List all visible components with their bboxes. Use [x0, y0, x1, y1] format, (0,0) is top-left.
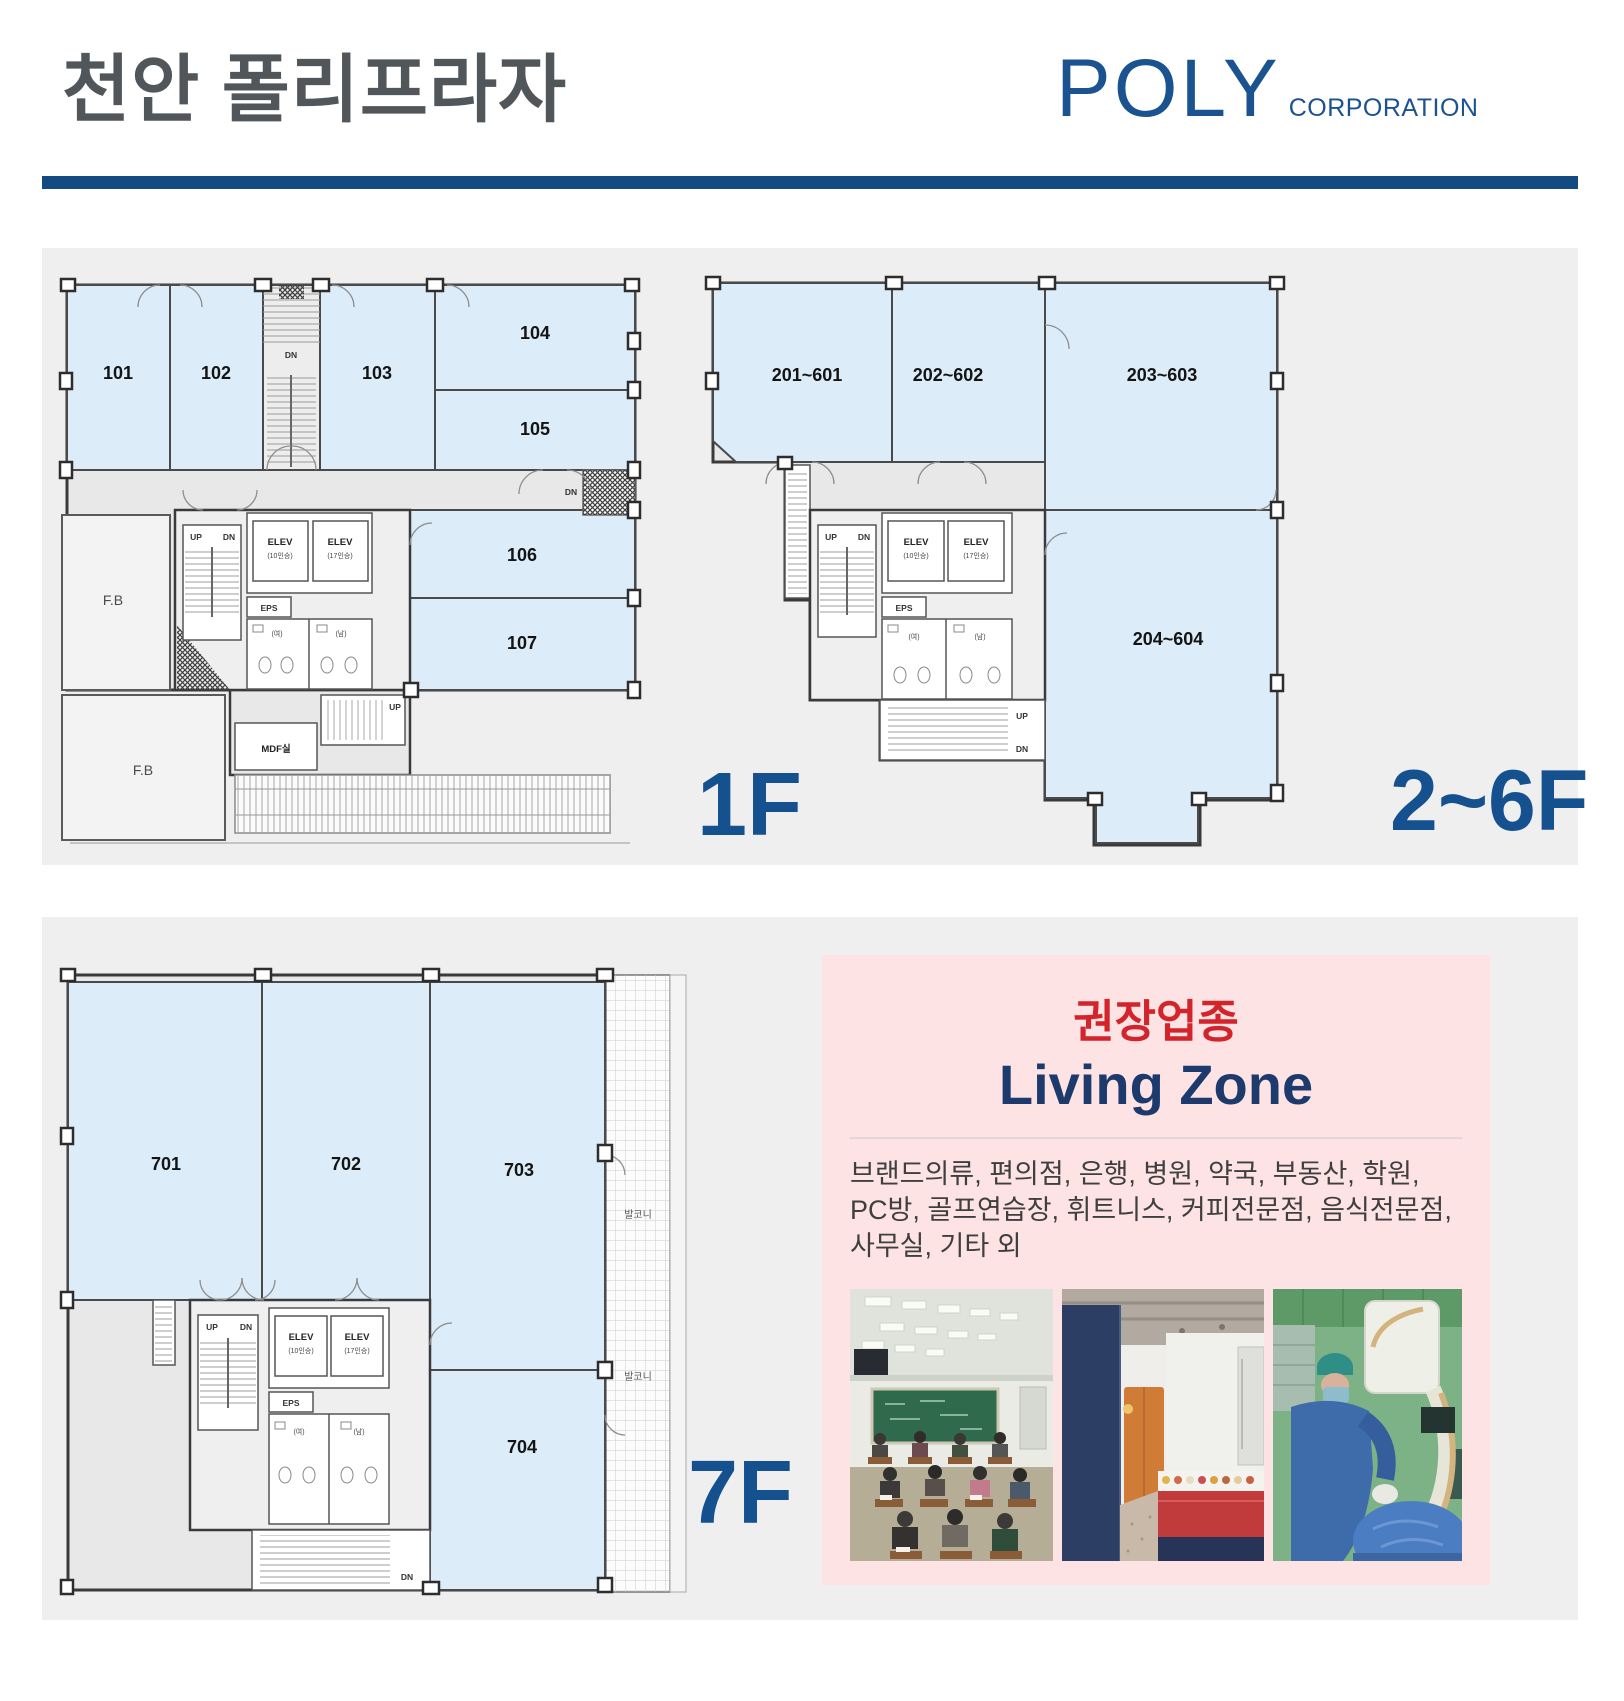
svg-text:EPS: EPS	[260, 603, 277, 613]
svg-text:DN: DN	[858, 532, 870, 542]
poly-logo-text: POLY	[1056, 48, 1281, 130]
room-701-area	[68, 982, 262, 1300]
living-zone-title: Living Zone	[822, 1052, 1490, 1117]
room-label-101: 101	[103, 363, 133, 383]
elev-2-label: ELEV	[328, 537, 353, 548]
core-2-6f: UP DN ELEV (10인승) ELEV (17인승) EPS (여) (남…	[810, 510, 1045, 760]
svg-text:(10인승): (10인승)	[288, 1346, 313, 1355]
recommend-divider	[850, 1137, 1462, 1139]
svg-text:(여): (여)	[908, 632, 919, 641]
room-label-204-604: 204~604	[1133, 629, 1204, 649]
recommended-business-box: 권장업종 Living Zone 브랜드의류, 편의점, 은행, 병원, 약국,…	[822, 955, 1490, 1585]
svg-text:(10인승): (10인승)	[903, 551, 928, 560]
wc-men-label: (남)	[335, 629, 346, 638]
elev-1-label: ELEV	[268, 537, 293, 548]
svg-text:ELEV: ELEV	[345, 1332, 370, 1343]
svg-text:DN: DN	[240, 1322, 252, 1332]
header-divider	[42, 176, 1578, 189]
room-704-area	[430, 1370, 605, 1590]
photo-row	[850, 1289, 1462, 1561]
room-label-704: 704	[507, 1437, 537, 1457]
photo-classroom	[850, 1289, 1053, 1561]
svg-text:UP: UP	[389, 702, 401, 712]
svg-text:(남): (남)	[974, 632, 985, 641]
stairwell-top: DN	[263, 285, 320, 470]
poly-logo-suffix: CORPORATION	[1289, 94, 1479, 123]
recommend-line-3: 사무실, 기타 외	[850, 1229, 1462, 1265]
floor-plan-7f: UP DN ELEV (10인승) ELEV (17인승) EPS (여) (남…	[55, 950, 695, 1610]
room-label-202-602: 202~602	[913, 365, 984, 385]
svg-text:ELEV: ELEV	[289, 1332, 314, 1343]
fb-label-1: F.B	[103, 592, 123, 608]
room-204-604-area	[1045, 510, 1277, 843]
elev-1-cap: (10인승)	[267, 551, 292, 560]
room-label-201-601: 201~601	[772, 365, 843, 385]
restrooms	[882, 619, 1012, 699]
svg-text:(17인승): (17인승)	[963, 551, 988, 560]
balcony-strip	[605, 975, 686, 1592]
svg-text:ELEV: ELEV	[904, 537, 929, 548]
recommend-body: 브랜드의류, 편의점, 은행, 병원, 약국, 부동산, 학원, PC방, 골프…	[850, 1157, 1462, 1265]
balcony-label-1: 발코니	[624, 1209, 652, 1221]
room-label-106: 106	[507, 545, 537, 565]
svg-text:DN: DN	[223, 532, 235, 542]
poly-logo: POLY CORPORATION	[1056, 48, 1478, 130]
brochure-page: 천안 폴리프라자 POLY CORPORATION	[0, 0, 1624, 1701]
awning-strip	[235, 775, 610, 833]
mdf-label: MDF실	[261, 743, 291, 755]
photo-medical-room	[1273, 1289, 1462, 1561]
room-label-702: 702	[331, 1154, 361, 1174]
svg-text:(남): (남)	[353, 1427, 364, 1436]
recommend-line-2: PC방, 골프연습장, 휘트니스, 커피전문점, 음식전문점,	[850, 1193, 1462, 1229]
photo-retail-interior	[1062, 1289, 1264, 1561]
svg-text:DN: DN	[1016, 744, 1028, 754]
page-title: 천안 폴리프라자	[62, 30, 567, 137]
svg-text:UP: UP	[1016, 711, 1028, 721]
floor-label-1f: 1F	[697, 760, 802, 850]
room-label-203-603: 203~603	[1127, 365, 1198, 385]
room-label-105: 105	[520, 419, 550, 439]
fb-label-2: F.B	[133, 762, 153, 778]
svg-text:UP: UP	[825, 532, 837, 542]
svg-text:EPS: EPS	[895, 603, 912, 613]
room-label-103: 103	[362, 363, 392, 383]
wc-women-label: (여)	[271, 629, 282, 638]
recommend-line-1: 브랜드의류, 편의점, 은행, 병원, 약국, 부동산, 학원,	[850, 1157, 1462, 1193]
room-label-104: 104	[520, 323, 550, 343]
room-label-107: 107	[507, 633, 537, 653]
room-203-603-area	[1045, 283, 1277, 510]
recommend-title: 권장업종	[822, 985, 1490, 1050]
floor-label-2-6f: 2~6F	[1390, 758, 1588, 844]
floor-label-7f: 7F	[688, 1448, 793, 1538]
room-label-701: 701	[151, 1154, 181, 1174]
svg-text:DN: DN	[565, 487, 577, 497]
elev-2-cap: (17인승)	[327, 551, 352, 560]
floor-plan-1f: DN DN UP DN ELEV (10인승) ELEV (17인승)	[55, 255, 655, 855]
room-label-102: 102	[201, 363, 231, 383]
svg-text:EPS: EPS	[282, 1398, 299, 1408]
balcony-label-2: 발코니	[624, 1371, 652, 1383]
stair-dn-label: DN	[285, 350, 297, 360]
svg-text:(여): (여)	[293, 1427, 304, 1436]
room-label-703: 703	[504, 1160, 534, 1180]
svg-text:UP: UP	[190, 532, 202, 542]
svg-text:DN: DN	[401, 1572, 413, 1582]
svg-text:UP: UP	[206, 1322, 218, 1332]
room-702-area	[262, 982, 430, 1300]
svg-text:ELEV: ELEV	[964, 537, 989, 548]
svg-text:(17인승): (17인승)	[344, 1346, 369, 1355]
